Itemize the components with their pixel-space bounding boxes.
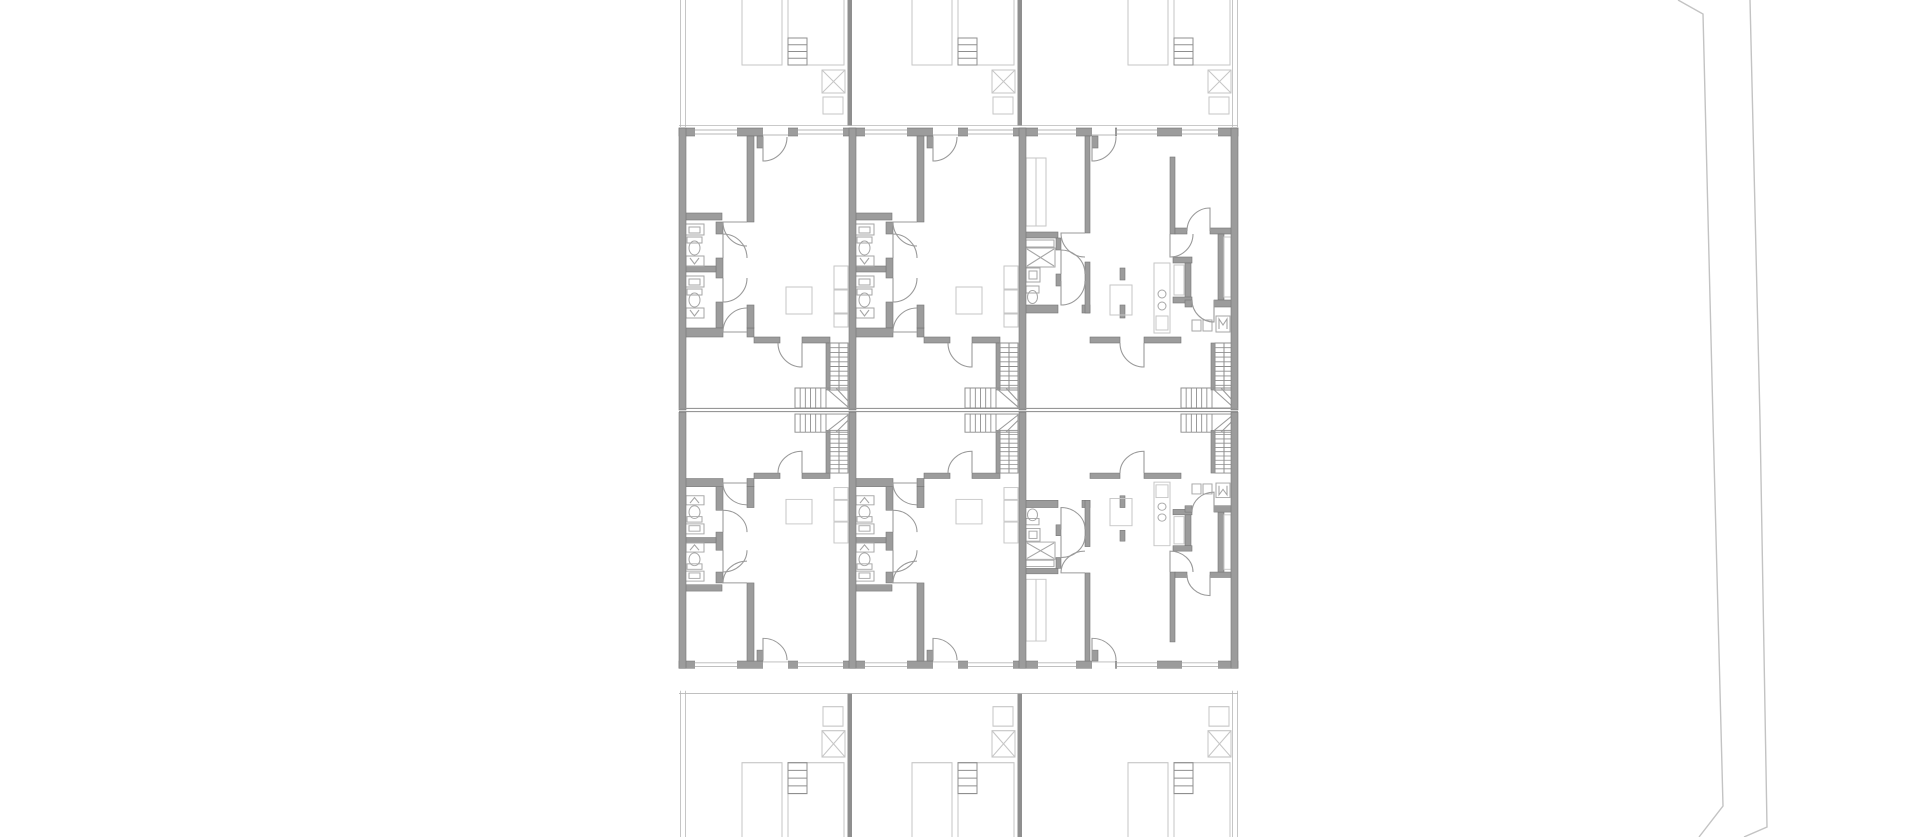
lower-yards bbox=[679, 691, 1238, 837]
upper-apartments bbox=[679, 127, 1238, 410]
upper-yards bbox=[679, 0, 1238, 128]
floor-plan-page bbox=[0, 0, 1920, 837]
lower-apartments bbox=[679, 412, 1238, 669]
road-boundary bbox=[1678, 0, 1767, 837]
floor-plan-svg bbox=[0, 0, 1920, 837]
